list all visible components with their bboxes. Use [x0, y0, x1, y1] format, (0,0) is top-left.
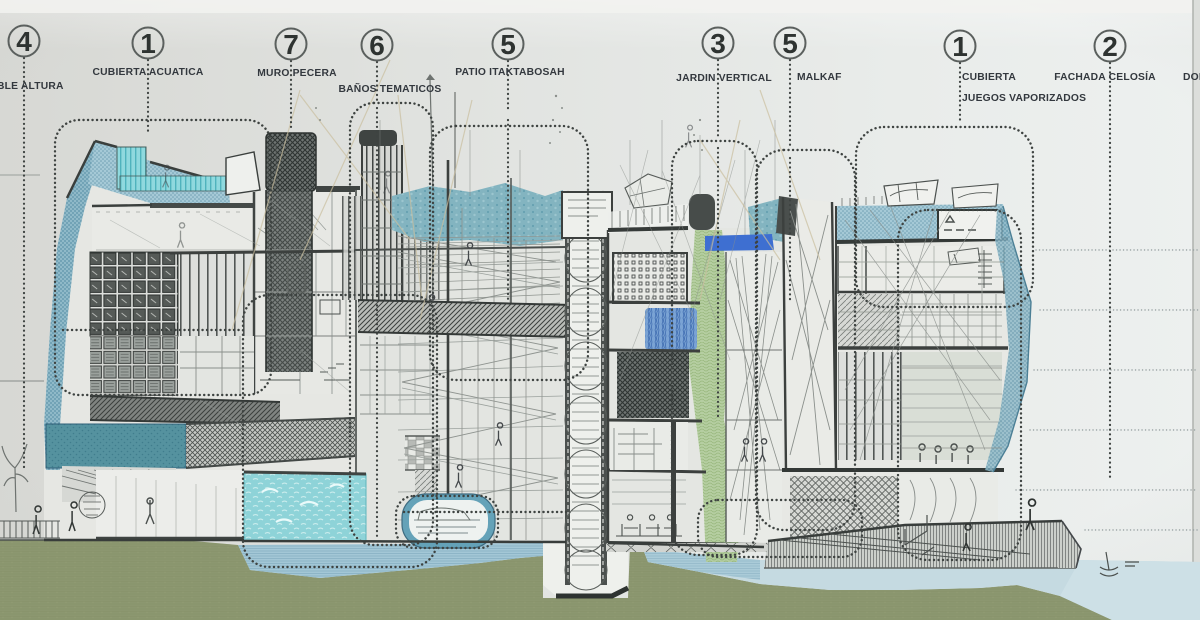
svg-text:6: 6 — [369, 30, 385, 61]
svg-text:7: 7 — [283, 29, 299, 60]
svg-text:5: 5 — [500, 29, 516, 60]
svg-text:FACHADA CELOSÍA: FACHADA CELOSÍA — [1054, 70, 1156, 83]
svg-text:JARDIN VERTICAL: JARDIN VERTICAL — [676, 73, 772, 84]
svg-text:1: 1 — [140, 28, 156, 59]
svg-text:4: 4 — [16, 26, 32, 57]
svg-text:MURO PECERA: MURO PECERA — [257, 68, 337, 79]
svg-text:DOB: DOB — [1183, 72, 1200, 83]
svg-text:5: 5 — [782, 28, 798, 59]
svg-text:BAÑOS TEMATICOS: BAÑOS TEMATICOS — [339, 82, 442, 95]
svg-text:CUBIERTA ACUATICA: CUBIERTA ACUATICA — [93, 67, 204, 78]
svg-text:PATIO ITAKTABOSAH: PATIO ITAKTABOSAH — [455, 67, 565, 78]
svg-text:MALKAF: MALKAF — [797, 72, 842, 83]
svg-text:CUBIERTA: CUBIERTA — [962, 72, 1016, 83]
svg-text:1: 1 — [952, 31, 968, 62]
svg-text:2: 2 — [1102, 31, 1118, 62]
svg-text:BLE ALTURA: BLE ALTURA — [0, 81, 64, 92]
svg-text:JUEGOS VAPORIZADOS: JUEGOS VAPORIZADOS — [962, 93, 1086, 104]
svg-text:3: 3 — [710, 28, 726, 59]
